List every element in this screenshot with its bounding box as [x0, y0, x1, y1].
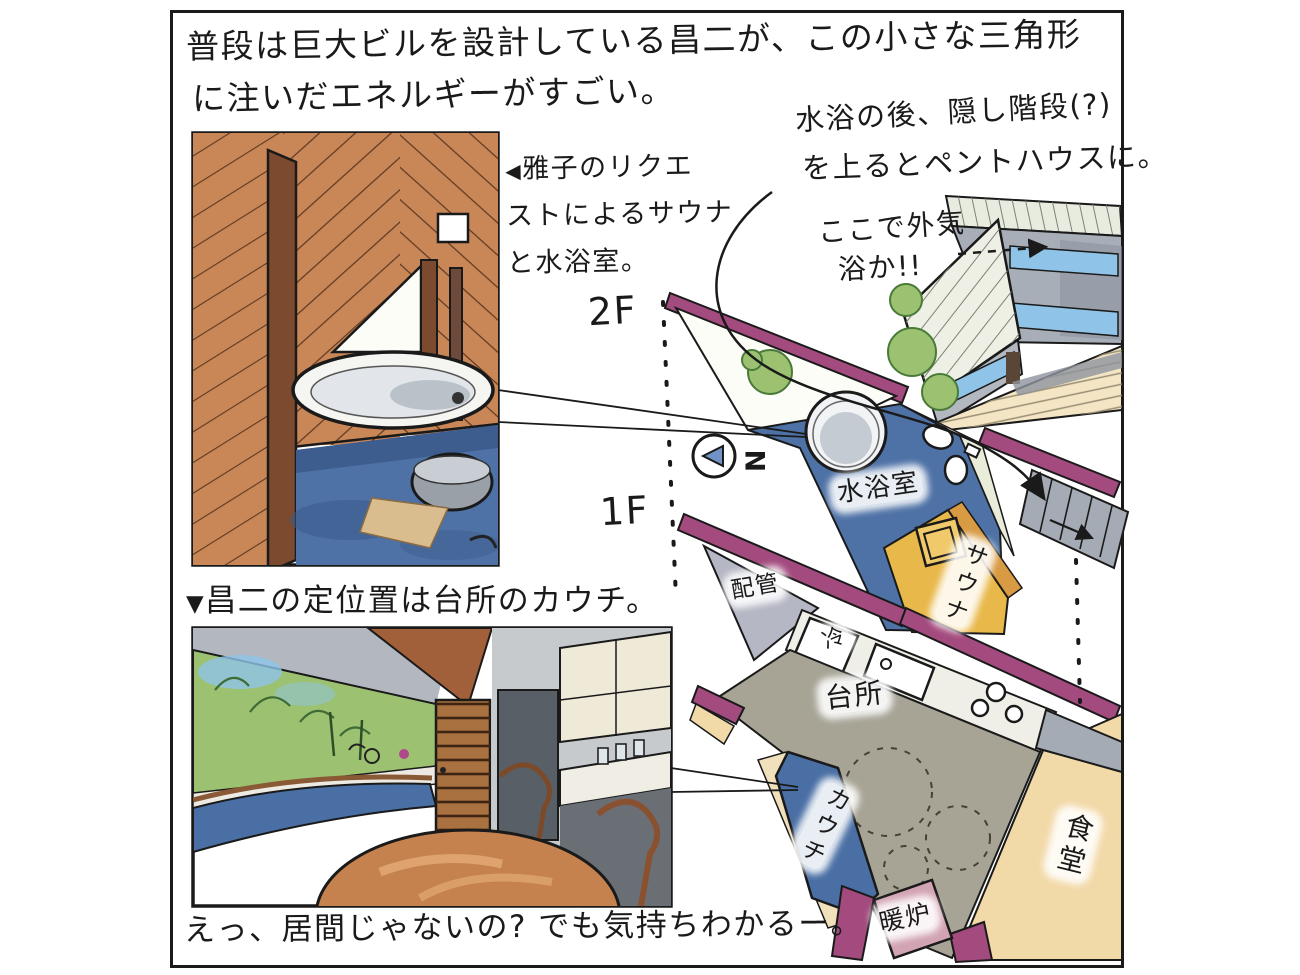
sauna-note-marker: ◀ [505, 159, 522, 183]
door-plank [268, 150, 296, 572]
bathroom-sketch [193, 133, 500, 572]
label-1f: 1F [599, 489, 650, 535]
house-door [1006, 352, 1020, 384]
wash-basin [412, 454, 492, 510]
upper-cabinets [560, 632, 671, 742]
sauna-note-line1: 雅子のリクエ [522, 151, 694, 185]
stairs-to-1f-dashed-line [1076, 560, 1080, 702]
wood-post [421, 260, 437, 362]
faucet [452, 392, 464, 404]
compass-letter: N [739, 449, 770, 473]
bathtub [293, 352, 493, 428]
label-2f: 2F [587, 289, 638, 335]
bottom-caption: えっ、居間じゃないの? でも気持ちわかるー。 [184, 906, 863, 949]
round-tub [806, 392, 886, 472]
sauna-note-line3: と水浴室。 [507, 244, 735, 279]
sauna-note-line2: ストによるサウナ [506, 197, 734, 232]
couch-caption-marker: ▼ [186, 591, 205, 617]
sketch-page: 普段は巨大ビルを設計している昌二が、この小さな三角形 に注いだエネルギーがすごい… [0, 0, 1300, 975]
floor-divider-dashed-line [663, 302, 676, 598]
north-arrow-compass [693, 435, 735, 477]
couch-caption-text: 昌二の定位置は台所のカウチ。 [205, 583, 658, 619]
air-bath-note-line2: 浴か!! [837, 250, 923, 287]
plan-1f [690, 546, 1122, 962]
couch-caption: ▼昌二の定位置は台所のカウチ。 [186, 584, 659, 620]
bathroom-left-wall [193, 133, 296, 572]
door-handle [440, 767, 446, 773]
wood-slat-door [436, 700, 490, 836]
sauna-note: ◀雅子のリクエ ストによるサウナ と水浴室。 [505, 150, 734, 279]
flower [399, 749, 409, 759]
small-window [438, 214, 468, 242]
